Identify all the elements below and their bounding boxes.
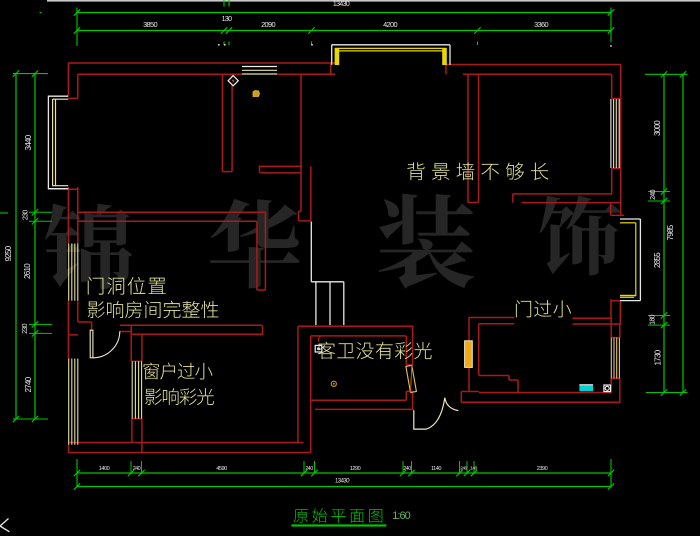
svg-text:2855: 2855 [653,252,662,268]
svg-text:13430: 13430 [335,479,350,485]
svg-text:240: 240 [403,466,411,472]
svg-text:3440: 3440 [24,134,33,150]
svg-text:2610: 2610 [23,263,32,279]
svg-text:130: 130 [222,16,233,23]
svg-text:240: 240 [650,189,657,200]
svg-text:3850: 3850 [143,20,157,29]
svg-text:9250: 9250 [4,245,13,261]
svg-text:1400: 1400 [99,466,110,472]
svg-text:4590: 4590 [216,466,227,472]
svg-text:1:60: 1:60 [392,510,410,522]
svg-text:240: 240 [305,466,313,472]
svg-text:1290: 1290 [350,466,361,472]
svg-text:230: 230 [23,210,30,221]
svg-text:3360: 3360 [534,20,548,29]
svg-text:2090: 2090 [261,20,275,29]
svg-text:4200: 4200 [383,20,397,29]
svg-text:180: 180 [650,314,657,325]
svg-text:140: 140 [470,466,477,472]
svg-text:2390: 2390 [537,466,548,472]
svg-text:13430: 13430 [333,1,350,8]
svg-text:7985: 7985 [666,224,675,240]
svg-text:1730: 1730 [654,349,663,365]
svg-text:2740: 2740 [24,376,33,392]
svg-text:1140: 1140 [431,466,441,472]
svg-text:240: 240 [133,466,141,472]
svg-text:3000: 3000 [653,120,662,136]
svg-text:240: 240 [460,466,467,472]
svg-text:230: 230 [22,323,29,334]
